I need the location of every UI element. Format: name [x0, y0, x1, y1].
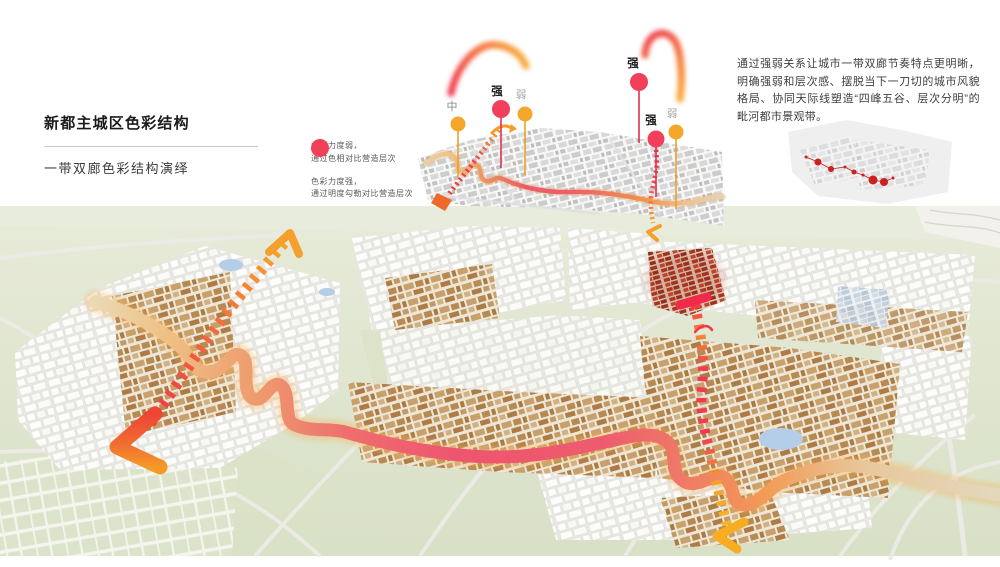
legend-strong-line1: 色彩力度强， — [311, 176, 413, 189]
svg-text:弱: 弱 — [667, 108, 678, 120]
svg-text:强: 强 — [645, 114, 657, 127]
svg-text:强: 强 — [627, 57, 639, 70]
blue-district — [836, 286, 890, 328]
svg-text:强: 强 — [491, 85, 503, 98]
pin-strong-2: 强 — [627, 57, 648, 143]
legend: 色彩力度弱， 通过色相对比营造层次 色彩力度强， 通过明度勾勒对比营造层次 — [311, 139, 413, 210]
svg-text:弱: 弱 — [516, 89, 527, 101]
title-divider — [44, 146, 258, 147]
page-subtitle: 一带双廊色彩结构演绎 — [44, 158, 284, 177]
main-map — [0, 206, 1000, 560]
legend-item-strong: 色彩力度强， 通过明度勾勒对比营造层次 — [311, 175, 413, 202]
title-block: 新都主城区色彩结构 一带双廊色彩结构演绎 — [44, 112, 284, 177]
legend-strong-line2: 通过明度勾勒对比营造层次 — [311, 188, 413, 201]
page-title: 新都主城区色彩结构 — [44, 112, 284, 133]
rhythm-arc-right — [645, 33, 681, 99]
slide: 中 强 弱 强 强 — [0, 0, 1000, 567]
svg-text:中: 中 — [447, 100, 458, 113]
strong-color-dot-icon — [311, 139, 329, 157]
minimap-curl-arrow — [509, 124, 517, 133]
rhythm-arc-left — [451, 45, 526, 93]
keymap-thumbnail — [788, 120, 952, 204]
description-paragraph: 通过强弱关系让城市一带双廊节奏特点更明晰，明确强弱和层次感、摆脱当下一刀切的城市… — [737, 56, 980, 126]
